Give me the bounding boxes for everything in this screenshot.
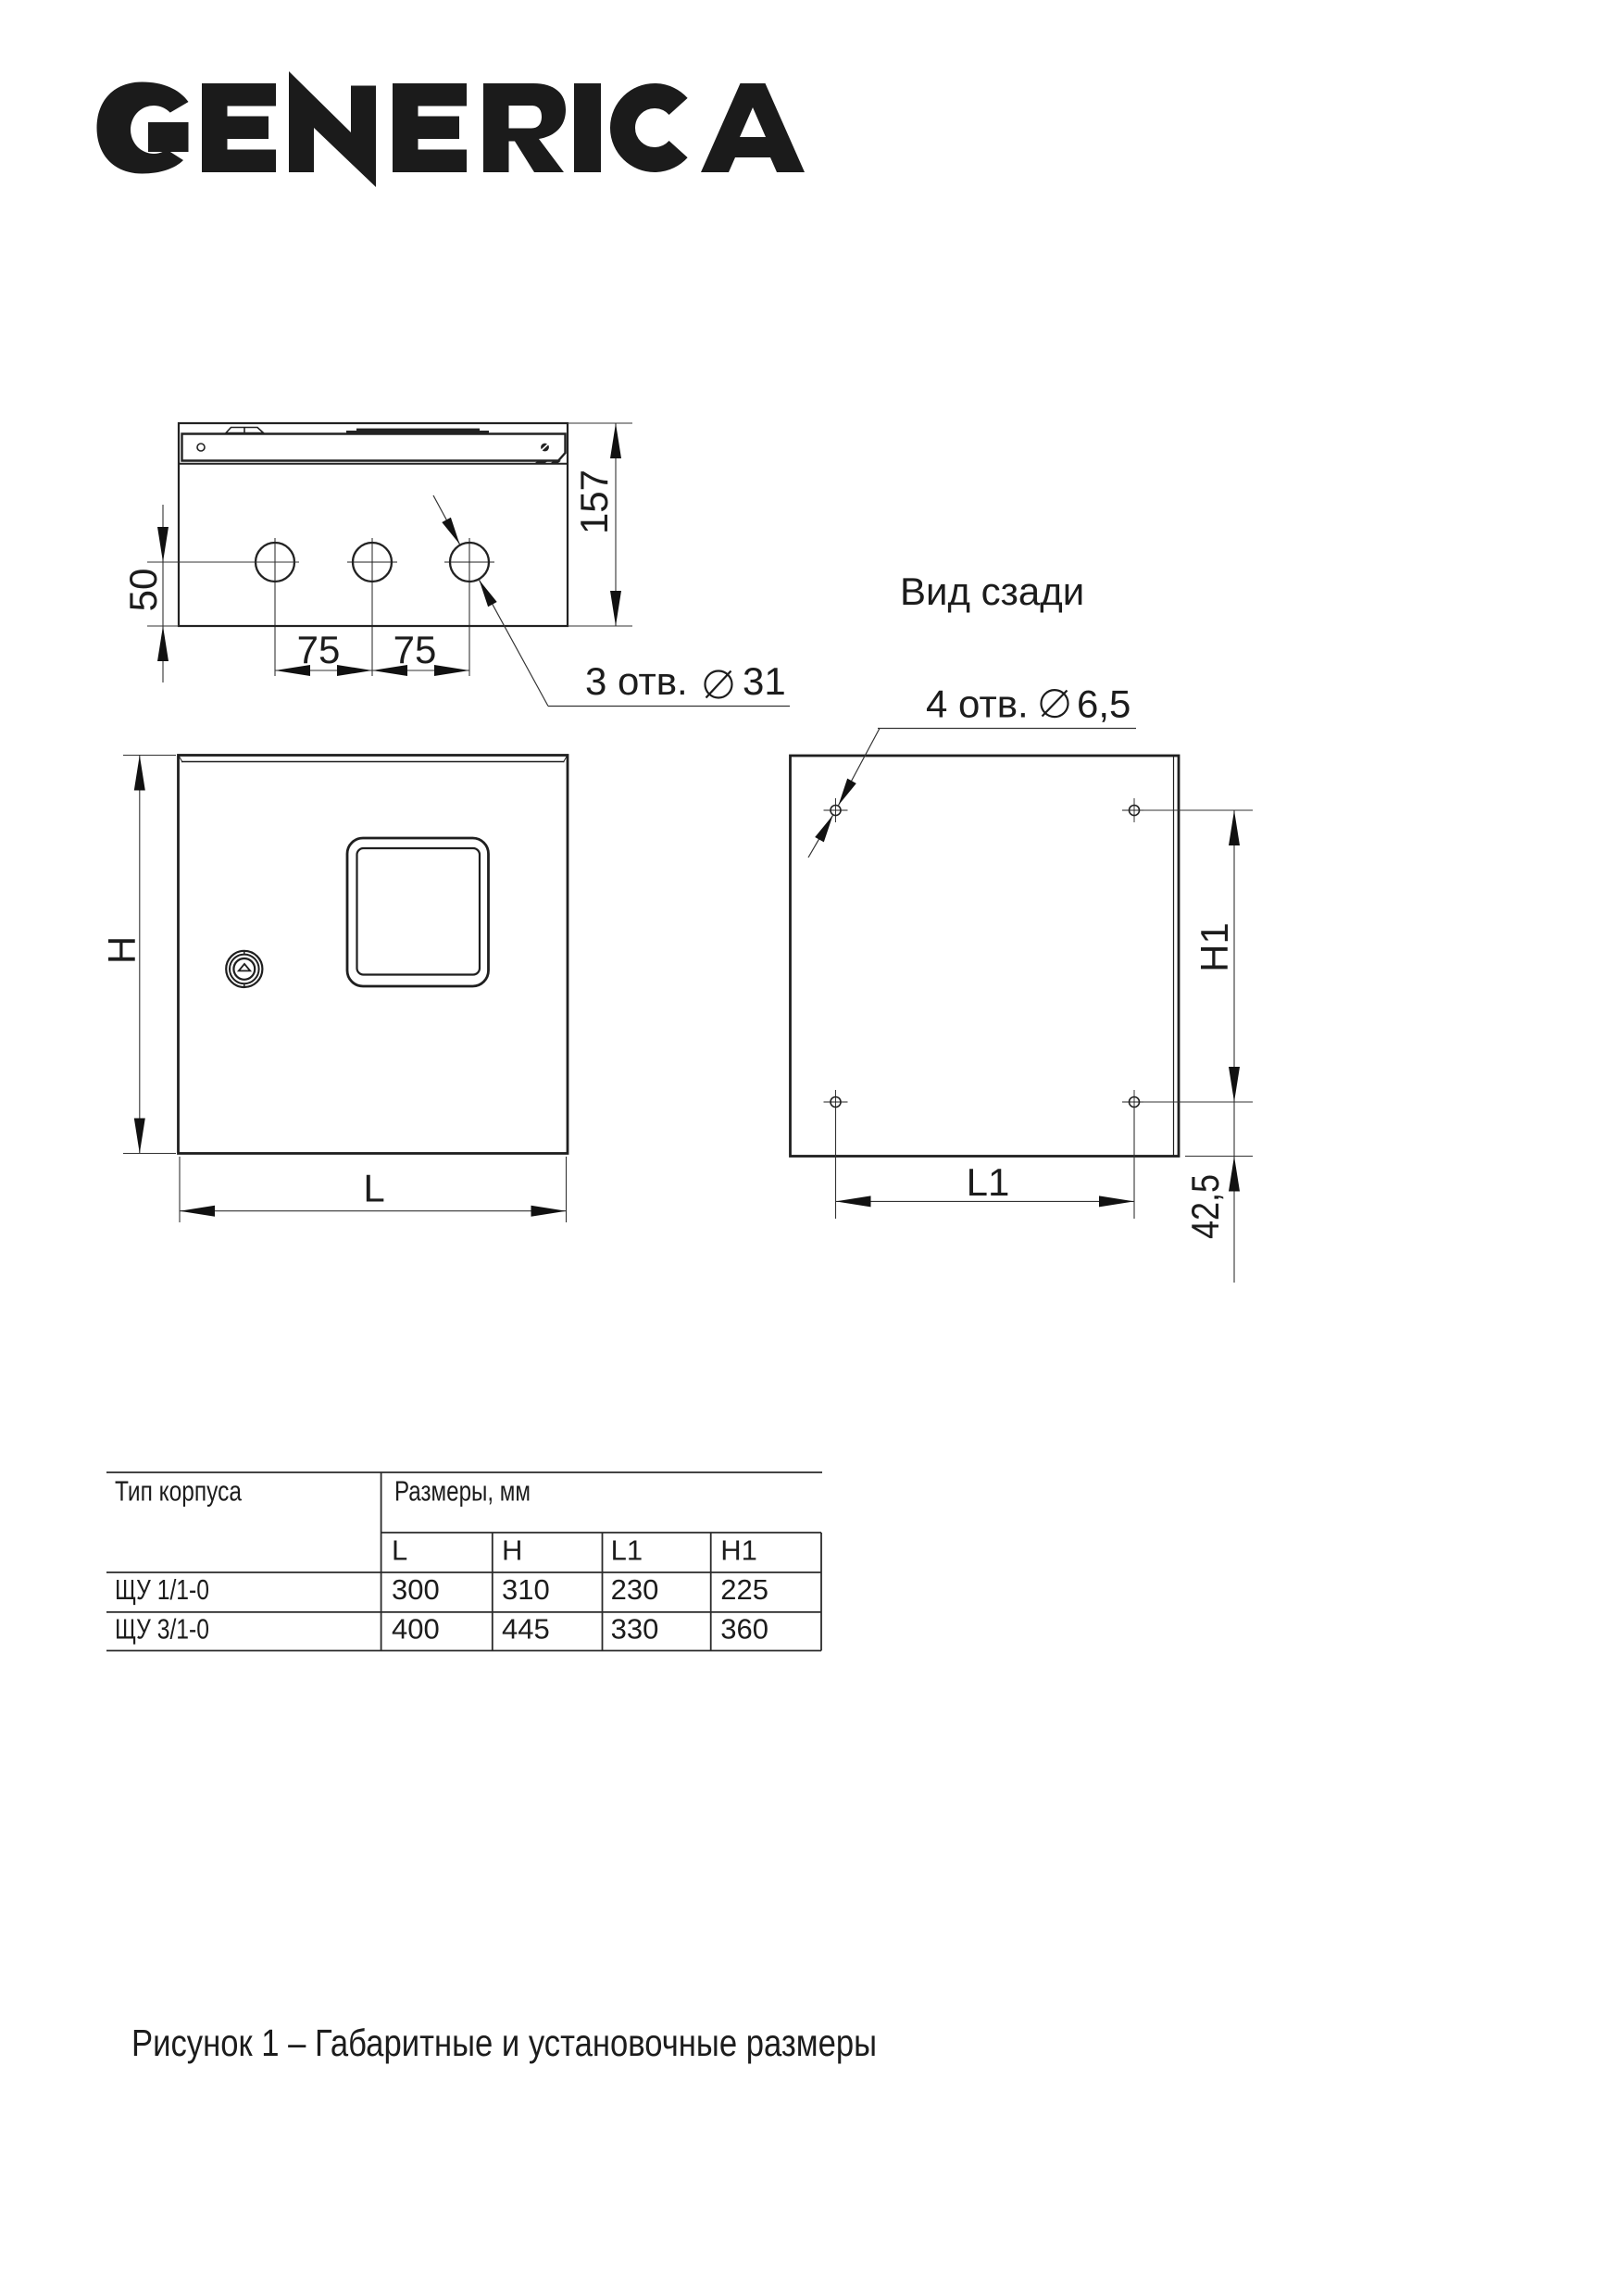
svg-text:50: 50 xyxy=(121,569,165,612)
svg-text:300: 300 xyxy=(392,1573,440,1606)
svg-text:H1: H1 xyxy=(1193,922,1236,972)
svg-text:4 отв.: 4 отв. xyxy=(926,682,1029,725)
svg-text:330: 330 xyxy=(611,1613,659,1646)
svg-text:42,5: 42,5 xyxy=(1183,1174,1227,1239)
svg-text:360: 360 xyxy=(720,1613,768,1646)
svg-text:L: L xyxy=(392,1534,407,1566)
svg-text:310: 310 xyxy=(502,1573,550,1606)
svg-text:L1: L1 xyxy=(967,1160,1010,1204)
svg-text:H: H xyxy=(100,936,144,964)
svg-text:3 отв.: 3 отв. xyxy=(585,659,688,703)
svg-text:ЩУ 1/1-0: ЩУ 1/1-0 xyxy=(115,1573,209,1606)
svg-text:Размеры, мм: Размеры, мм xyxy=(394,1475,531,1508)
svg-text:ЩУ 3/1-0: ЩУ 3/1-0 xyxy=(115,1613,209,1646)
svg-text:H1: H1 xyxy=(720,1534,757,1566)
svg-text:230: 230 xyxy=(611,1573,659,1606)
svg-text:157: 157 xyxy=(572,469,616,534)
svg-text:Рисунок 1 – Габаритные и устан: Рисунок 1 – Габаритные и установочные ра… xyxy=(131,2022,877,2064)
svg-text:445: 445 xyxy=(502,1613,550,1646)
svg-text:75: 75 xyxy=(394,628,437,671)
svg-text:6,5: 6,5 xyxy=(1077,682,1131,725)
svg-text:31: 31 xyxy=(743,659,786,703)
svg-text:L: L xyxy=(363,1167,384,1210)
svg-text:H: H xyxy=(502,1534,522,1566)
svg-text:Тип корпуса: Тип корпуса xyxy=(115,1475,243,1508)
svg-text:75: 75 xyxy=(297,628,341,671)
svg-text:400: 400 xyxy=(392,1613,440,1646)
svg-text:L1: L1 xyxy=(611,1534,643,1566)
svg-text:225: 225 xyxy=(720,1573,768,1606)
svg-text:Вид сзади: Вид сзади xyxy=(900,570,1084,613)
